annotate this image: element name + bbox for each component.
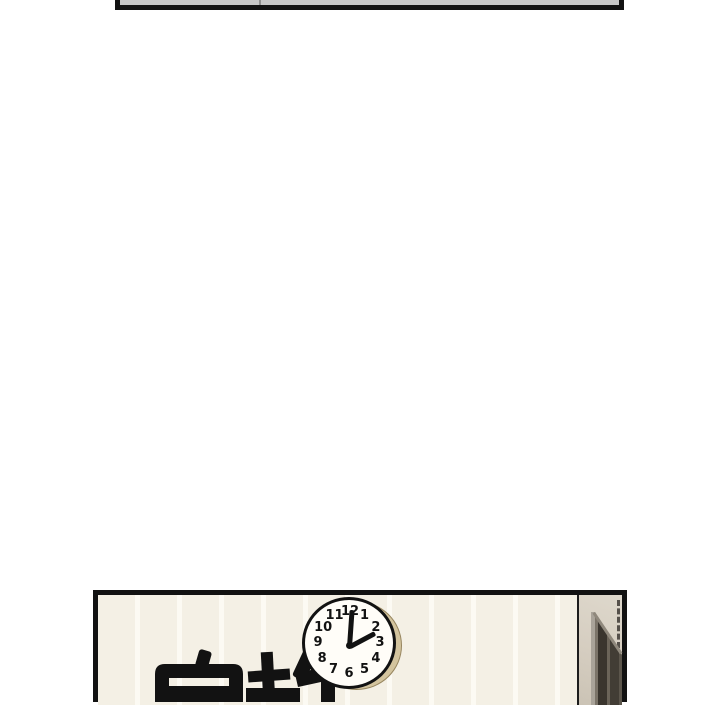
top-panel-divider-line [259,0,261,5]
clock-number: 5 [357,663,373,677]
top-panel-strip [115,0,624,10]
clock-number: 3 [372,636,388,650]
clock-number: 11 [326,609,342,623]
door-frame-highlight [591,612,595,705]
comic-page: { "page": { "background_color": "#ffffff… [0,0,720,700]
clock-number: 9 [310,636,326,650]
clock-hub [346,642,353,649]
clock-number: 6 [341,667,357,681]
classroom-panel-interior: 123456789101112 [98,595,622,702]
door-hinge-dotted-line [617,600,620,648]
classroom-panel: 123456789101112 [93,590,627,702]
wall-clock: 123456789101112 [302,597,404,693]
clock-number: 8 [314,652,330,666]
clock-face: 123456789101112 [302,597,396,689]
